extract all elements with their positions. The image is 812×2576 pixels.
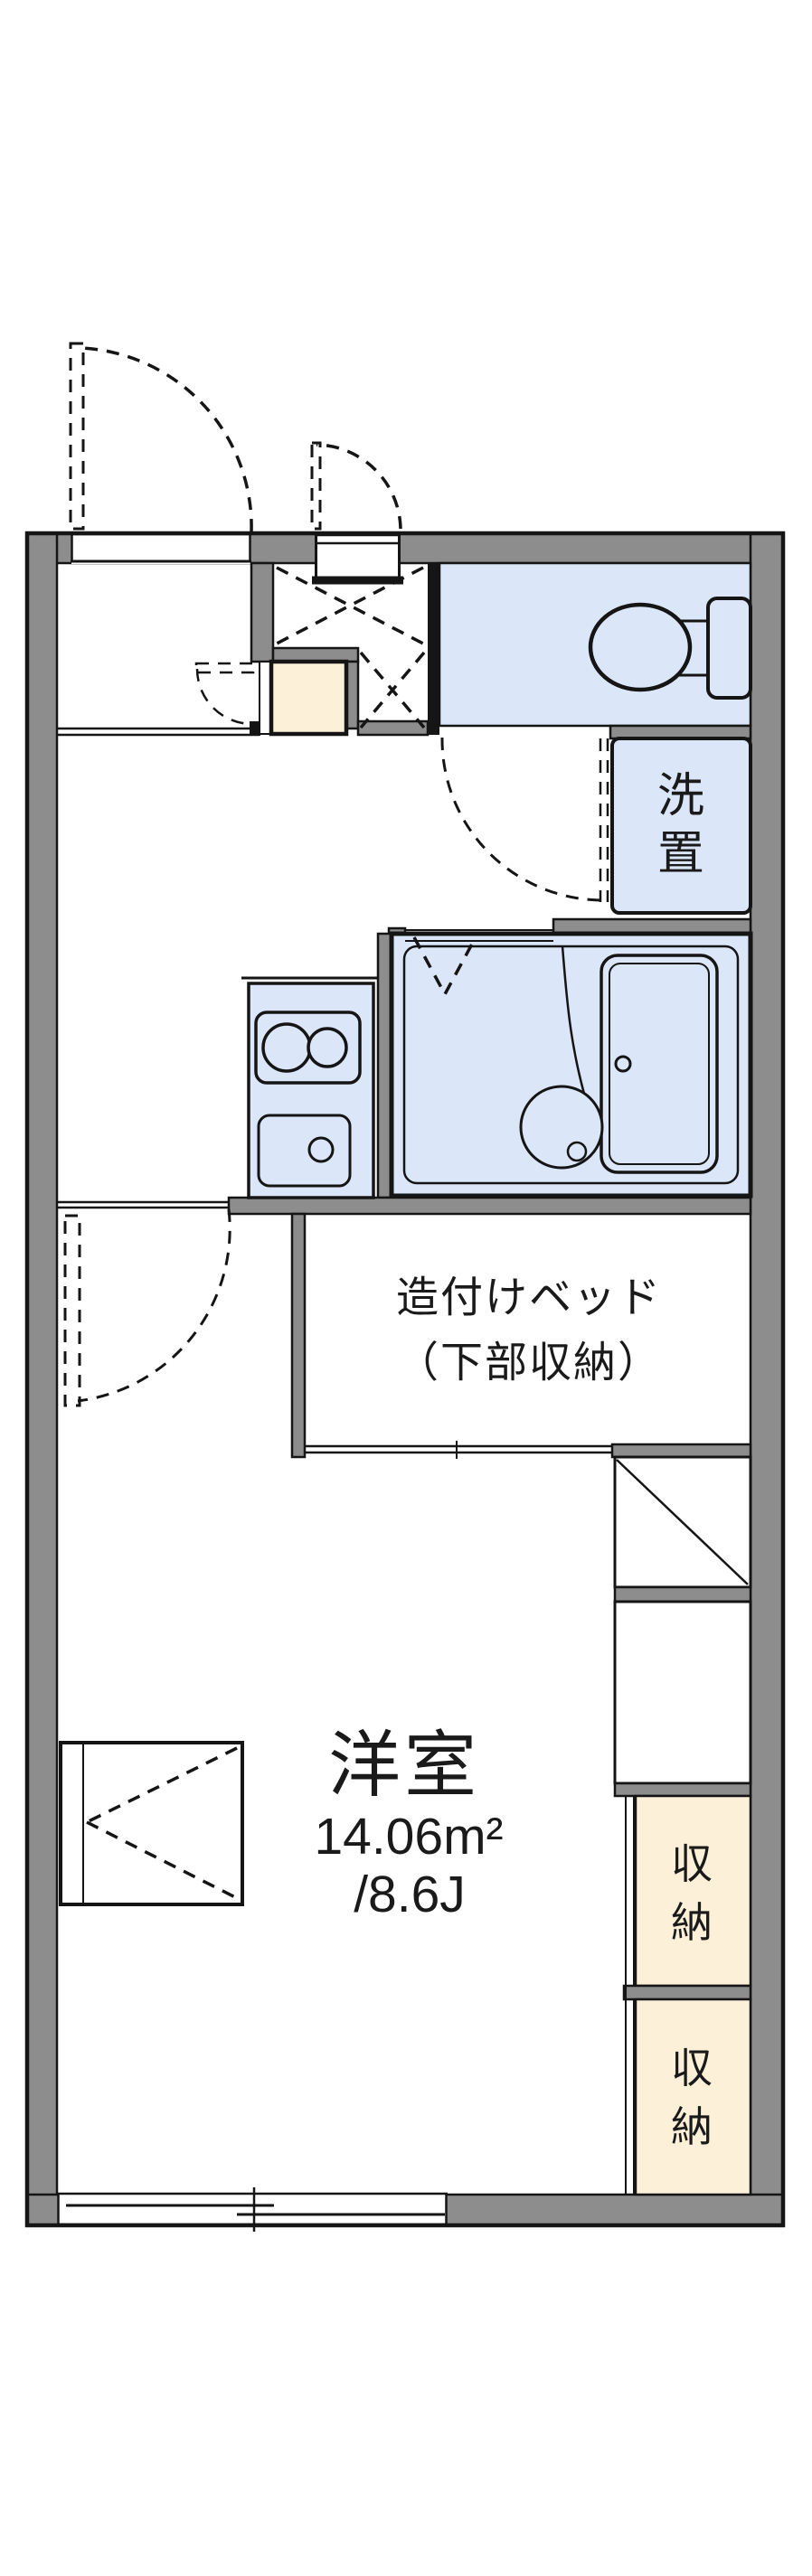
kitchen-sink [259,1115,350,1186]
closet-upper-label-char-2: 納 [671,1899,713,1946]
bath-stool [521,1086,602,1168]
hall-room-boundary [57,1202,229,1208]
entrance-door [71,343,251,531]
genkan-inner-door [196,663,253,724]
washroom-door-swing-arc [442,738,603,900]
storage-compartment [615,1602,751,1796]
genkan-step-edge [57,729,260,735]
closet-upper-label-char-1: 収 [671,1840,713,1887]
room-name-label: 洋室 [328,1725,480,1806]
kitchen-sink-drain [309,1138,333,1161]
main-room-area: 洋室 14.06m² /8.6J [314,1725,503,1924]
room-door-leaf [65,1216,80,1406]
refrigerator-space [615,1457,751,1602]
entrance-opening [71,531,251,564]
bath-drain [568,1142,586,1161]
kitchen-burner-left [263,1024,310,1071]
closet-lower-label-char-1: 収 [671,2045,713,2092]
toilet-bowl [590,605,690,690]
entrance-door-leaf [71,343,83,529]
closet-divider-wall [624,1986,751,1999]
genkan-inner-door-swing-arc [197,669,252,724]
front-door-leaf [312,443,320,529]
bed-bottom-wall [612,1444,751,1457]
bathtub-knob [616,1057,630,1071]
room-door-swing-arc [78,1209,230,1401]
built-in-bed-area: 造付けベッド （下部収納） [292,1214,751,1459]
floor-plan-drawing: 洗 置 [0,0,812,2576]
left-wall [27,533,57,2225]
genkan-tile [271,662,346,734]
toilet-room [439,563,751,738]
bed-label-line-1: 造付けベッド [396,1274,662,1321]
entrance-door-swing-arc [81,348,251,531]
room-area-label: 14.06m² [314,1808,503,1866]
kitchen-burner-right [308,1029,346,1067]
washer-space: 洗 置 [612,738,751,913]
kitchen-zone-bottom-wall [229,1198,751,1214]
washer-label-char-2: 置 [657,828,704,880]
closet-lower: 収 納 [626,1999,751,2195]
toilet-bottom-wall [610,726,751,738]
washroom-door [442,738,608,902]
toilet-left-wall [428,563,439,735]
bed-left-wall [292,1214,305,1457]
kitchen [241,978,378,1198]
washer-label-char-1: 洗 [657,770,704,823]
genkan-inner-door-leaf [196,663,253,672]
toilet-tank [708,598,751,698]
front-door-swing-arc [316,445,401,529]
floor-plan-page: 洗 置 [0,0,812,2576]
bay-window [61,1743,242,1904]
right-wall [751,533,783,2225]
closet-upper: 収 納 [626,1796,751,1986]
bathroom [392,930,751,1196]
room-door [65,1209,230,1406]
front-door-porch [312,531,403,582]
front-door [312,443,401,529]
room-tatami-label: /8.6J [354,1866,466,1923]
bed-label-line-2: （下部収納） [396,1339,662,1387]
closet-lower-label-char-2: 納 [671,2103,713,2150]
